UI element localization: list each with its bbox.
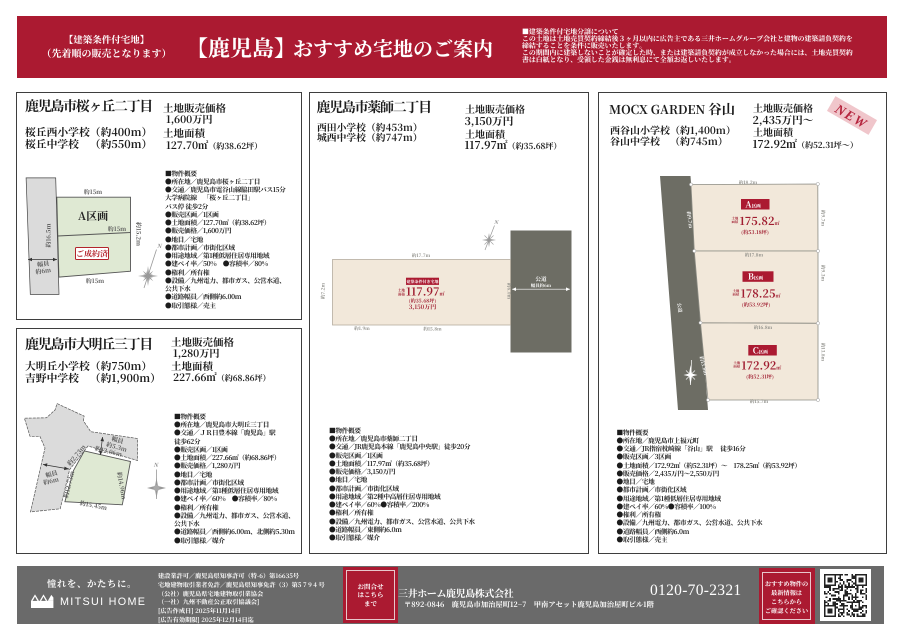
svg-text:約15.8m: 約15.8m: [423, 327, 442, 333]
svg-text:N: N: [494, 219, 499, 226]
svg-text:178.25㎡: 178.25㎡: [741, 285, 781, 301]
svg-text:約15m: 約15m: [108, 224, 126, 233]
svg-text:約15m: 約15m: [86, 276, 104, 285]
svg-text:約17.7m: 約17.7m: [412, 253, 431, 259]
svg-text:約17.8m: 約17.8m: [745, 253, 764, 259]
svg-text:約9.7m: 約9.7m: [820, 210, 826, 227]
svg-text:(約53.18坪): (約53.18坪): [741, 229, 768, 236]
svg-text:約18.2m: 約18.2m: [739, 180, 758, 186]
svg-text:約6.0m: 約6.0m: [506, 283, 512, 300]
svg-text:ご成約済: ご成約済: [76, 249, 108, 260]
svg-text:約16.5m: 約16.5m: [44, 224, 53, 248]
svg-text:約1.9m: 約1.9m: [354, 326, 370, 332]
svg-text:(約52.31坪): (約52.31坪): [746, 373, 773, 380]
svg-text:幅員約6m: 幅員約6m: [531, 283, 552, 289]
svg-text:3,150万円: 3,150万円: [409, 302, 437, 311]
svg-text:約13.8m: 約13.8m: [820, 343, 826, 362]
svg-text:約15.2m: 約15.2m: [135, 222, 144, 246]
svg-text:175.82㎡: 175.82㎡: [740, 213, 780, 229]
svg-text:約16.8m: 約16.8m: [754, 325, 773, 331]
svg-text:土地面積: 土地面積: [732, 216, 739, 225]
svg-text:公道: 公道: [535, 275, 547, 283]
svg-text:約7.2m: 約7.2m: [321, 283, 327, 300]
svg-text:土地面積: 土地面積: [733, 288, 740, 297]
svg-text:約9.3m: 約9.3m: [820, 265, 826, 282]
svg-text:約15.7m: 約15.7m: [750, 399, 769, 405]
svg-text:N: N: [157, 242, 163, 250]
svg-text:約15m: 約15m: [84, 187, 102, 196]
svg-text:A区画: A区画: [78, 208, 108, 224]
svg-text:172.92㎡: 172.92㎡: [741, 357, 781, 373]
svg-text:N: N: [154, 461, 160, 469]
svg-text:(約53.92坪): (約53.92坪): [742, 301, 770, 308]
svg-text:公道: 公道: [675, 303, 683, 314]
svg-text:土地面積: 土地面積: [733, 360, 740, 369]
